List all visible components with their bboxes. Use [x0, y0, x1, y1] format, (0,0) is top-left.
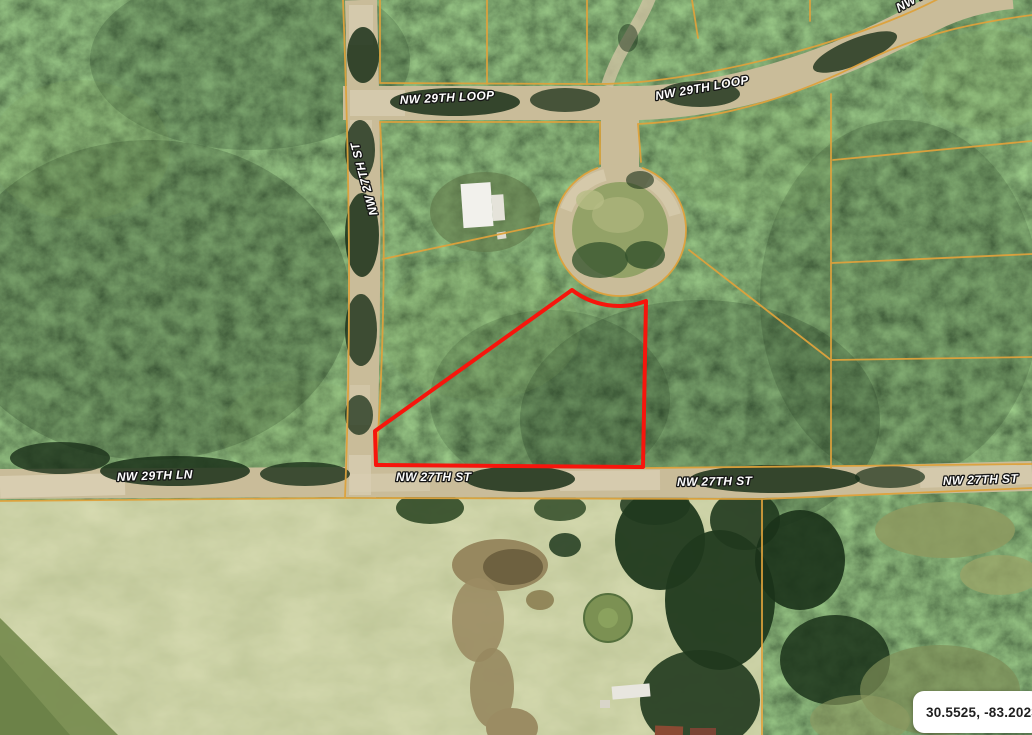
street-label-nw-27th-st-east: NW 27TH ST: [943, 471, 1020, 488]
coordinates-text: 30.5525, -83.2023: [926, 705, 1032, 720]
aerial-map: NW 29TH LOOP NW 29TH LOOP NW 29TH LOOP N…: [0, 0, 1032, 735]
map-canvas[interactable]: NW 29TH LOOP NW 29TH LOOP NW 29TH LOOP N…: [0, 0, 1032, 735]
cul-de-sac: [563, 173, 677, 287]
mound: [584, 594, 632, 642]
building-structure: [430, 172, 540, 252]
terrain-layer: [0, 0, 1032, 735]
coordinates-badge: 30.5525, -83.2023: [913, 691, 1032, 733]
street-label-nw-27th-st-center: NW 27TH ST: [677, 474, 754, 489]
street-label-nw-29th-ln: NW 29TH LN: [117, 467, 193, 484]
street-label-nw-27th-st-west: NW 27TH ST: [396, 470, 473, 484]
